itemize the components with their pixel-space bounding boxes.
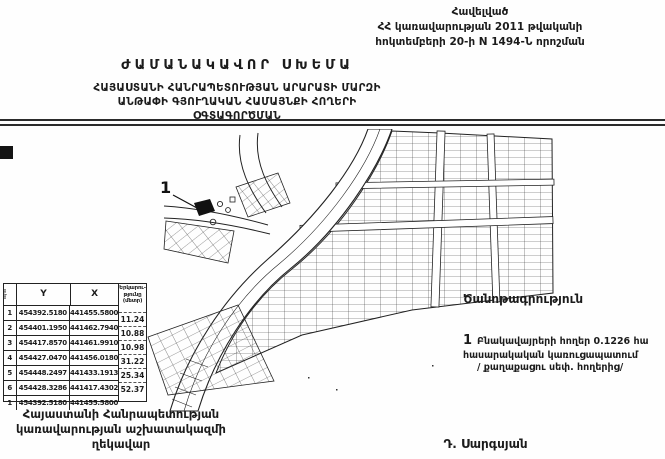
table-row: 5 454448.2497 441433.1913	[4, 365, 118, 380]
annex-line-1: Հավելված	[315, 5, 645, 20]
marker-circle-2	[226, 208, 231, 213]
annex-line-2: ՀՀ կառավարության 2011 թվականի	[315, 20, 645, 35]
table-row: 2 454401.1950 441462.7940	[4, 320, 118, 335]
note-line-2: հասարակական կառուցապատում	[463, 350, 665, 363]
cell-y: 454427.0470	[17, 351, 70, 365]
note-line-1: 1Բնակավայրերի հողեր 0.1226 հա	[463, 332, 665, 350]
col-header-index: հ/հ	[4, 284, 17, 305]
note-line-3: / քաղաքացու սեփ. հողերից/	[463, 362, 665, 375]
marker-leader-line	[173, 195, 197, 208]
document-title: ԺԱՄԱՆԱԿԱՎՈՐ ՍԽԵՄԱ	[55, 58, 420, 73]
marker-label: 1	[160, 178, 171, 197]
cell-index: 2	[4, 321, 17, 335]
marker-square	[230, 197, 235, 202]
cell-length: 10.88	[119, 326, 146, 340]
cell-x: 441462.7940	[70, 321, 118, 335]
marker-circle-1	[217, 201, 222, 206]
coordinates-table-header: հ/հ Y X	[4, 284, 118, 305]
cell-index: 3	[4, 336, 17, 350]
marker-parcel-blob	[194, 199, 215, 216]
double-rule-divider	[0, 119, 665, 126]
col-header-x: X	[71, 284, 118, 305]
cell-index: 4	[4, 351, 17, 365]
cell-y: 454448.2497	[17, 366, 70, 380]
note-heading: Ծանոթագրություն	[463, 292, 665, 306]
length-column: Երկարու- թյունը (մետր) 11.24 10.88 10.98…	[118, 283, 147, 402]
subtitle-line-2: ԱՆԹԱՓԻ ԳՅՈՒՂԱԿԱՆ ՀԱՄԱՅՆՔԻ ՀՈՂԵՐԻ	[42, 96, 432, 110]
cell-x: 441461.9910	[70, 336, 118, 350]
annex-line-3: հոկտեմբերի 20-ի N 1494-Ն որոշման	[315, 35, 645, 50]
map-note: Ծանոթագրություն 1Բնակավայրերի հողեր 0.12…	[463, 292, 665, 375]
cell-length: 11.24	[119, 312, 146, 326]
signature-line-1: Հայաստանի Հանրապետության	[5, 407, 237, 422]
annex-reference: Հավելված ՀՀ կառավարության 2011 թվականի հ…	[315, 5, 645, 50]
cell-length: 31.22	[119, 354, 146, 368]
cell-length: 25.34	[119, 368, 146, 382]
cell-x: 441417.4302	[70, 381, 118, 395]
signature-block-left: Հայաստանի Հանրապետության կառավարության ա…	[5, 407, 237, 452]
cell-x: 441433.1913	[70, 366, 118, 380]
cell-length: 52.37	[119, 382, 146, 396]
cell-index: 5	[4, 366, 17, 380]
table-row: 1 454392.5180 441455.5800	[4, 305, 118, 320]
subtitle-line-1: ՀԱՅԱՍՏԱՆԻ ՀԱՆՐԱՊԵՏՈՒԹՅԱՆ ԱՐԱՐԱՏԻ ՄԱՐԶԻ	[42, 82, 432, 96]
table-row: 6 454428.3286 441417.4302	[4, 380, 118, 395]
note-body: 1Բնակավայրերի հողեր 0.1226 հա հասարակակա…	[463, 332, 665, 375]
scan-artifact-square	[0, 146, 13, 159]
col-header-y: Y	[17, 284, 71, 305]
cell-y: 454392.5180	[17, 306, 70, 320]
parcel-cluster-top	[236, 173, 290, 217]
legend-symbol: 1	[463, 333, 472, 348]
parcel-cluster-left	[164, 221, 234, 263]
site-marker	[173, 195, 235, 225]
coordinates-table-main: հ/հ Y X 1 454392.5180 441455.5800 2 4544…	[3, 283, 119, 402]
cell-y: 454401.1950	[17, 321, 70, 335]
coordinates-table: հ/հ Y X 1 454392.5180 441455.5800 2 4544…	[3, 283, 149, 404]
cell-y: 454428.3286	[17, 381, 70, 395]
table-row: 4 454427.0470 441456.0180	[4, 350, 118, 365]
cell-y: 454417.8570	[17, 336, 70, 350]
map-specks	[308, 365, 434, 391]
cell-index: 1	[4, 306, 17, 320]
cell-length: 10.98	[119, 340, 146, 354]
cell-x: 441456.0180	[70, 351, 118, 365]
signature-line-3: ղեկավար	[5, 437, 237, 452]
signature-line-2: կառավարության աշխատակազմի	[5, 422, 237, 437]
table-row: 3 454417.8570 441461.9910	[4, 335, 118, 350]
cell-index: 6	[4, 381, 17, 395]
document-subtitle: ՀԱՅԱՍՏԱՆԻ ՀԱՆՐԱՊԵՏՈՒԹՅԱՆ ԱՐԱՐԱՏԻ ՄԱՐԶԻ Ա…	[42, 82, 432, 124]
col-header-length: Երկարու- թյունը (մետր)	[119, 285, 146, 305]
signature-name: Դ. Սարգսյան	[403, 437, 568, 451]
cell-x: 441455.5800	[70, 306, 118, 320]
